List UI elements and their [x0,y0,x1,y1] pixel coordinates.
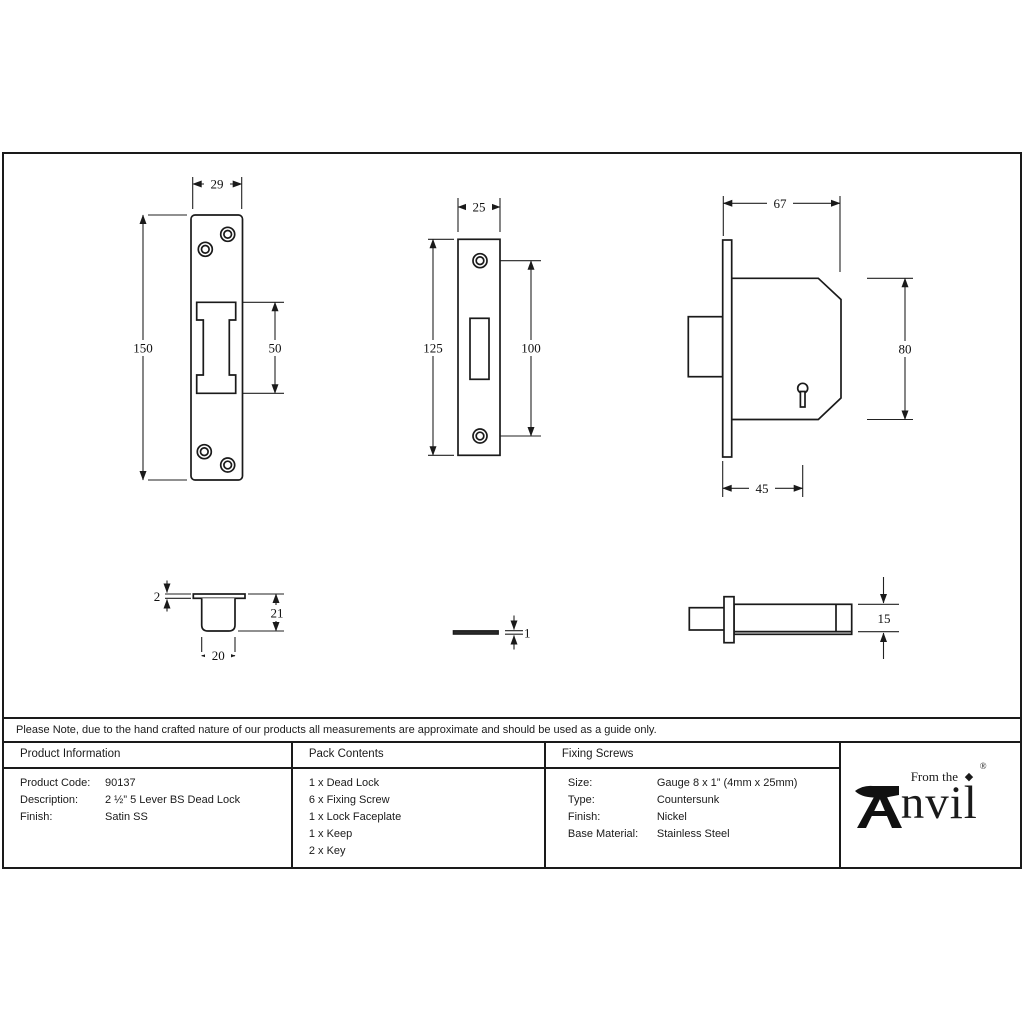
dim-lock-height: 80 [899,342,912,357]
table-row: Finish: Nickel [568,809,839,826]
dim-faceplate-height: 125 [423,341,443,356]
dim-keepside-height: 21 [271,606,284,621]
dim-faceplate-width: 25 [473,200,486,215]
lock-body-side [734,604,852,631]
lockcase-side-view: 15 [689,577,899,659]
table-row: Size: Gauge 8 x 1” (4mm x 25mm) [568,775,839,792]
pack-item: 1 x Dead Lock [309,775,544,792]
row-value: Stainless Steel [657,826,839,843]
lock-forend-strip [723,240,732,457]
dim-lockside-thickness: 15 [878,611,891,626]
lock-body-outline [732,278,841,419]
row-value: Countersunk [657,792,839,809]
row-label: Finish: [20,809,105,826]
lock-forend-side [724,597,734,643]
table-row: Type: Countersunk [568,792,839,809]
registered-mark: ® [980,761,987,771]
pack-contents-cell: Pack Contents 1 x Dead Lock 6 x Fixing S… [293,743,546,867]
table-row: Product Code: 90137 [20,775,291,792]
table-row: Base Material: Stainless Steel [568,826,839,843]
brand-logo-cell: From the ◆ ® nvil [841,743,1020,867]
row-value: 90137 [105,775,291,792]
row-label: Base Material: [568,826,657,843]
row-value: 2 ½” 5 Lever BS Dead Lock [105,792,291,809]
dim-faceplate-holes: 100 [521,341,541,356]
keep-cutout [197,302,236,393]
keep-lip [193,594,245,598]
keep-box [202,598,235,631]
dim-lock-backset: 45 [756,481,769,496]
product-information-header: Product Information [4,743,291,769]
faceplate-edge [453,631,498,635]
lock-body-baseplate [734,632,852,635]
keep-front-view: 29 150 50 [128,177,288,481]
dim-keep-width: 29 [211,177,224,192]
pack-item: 6 x Fixing Screw [309,792,544,809]
dim-keep-cutout: 50 [269,341,282,356]
fixing-screws-cell: Fixing Screws Size: Gauge 8 x 1” (4mm x … [546,743,841,867]
row-value: Satin SS [105,809,291,826]
row-label: Finish: [568,809,657,826]
note-bar: Please Note, due to the hand crafted nat… [2,717,1022,743]
pack-item: 1 x Keep [309,826,544,843]
row-label: Description: [20,792,105,809]
table-row: Finish: Satin SS [20,809,291,826]
note-text: Please Note, due to the hand crafted nat… [16,724,657,736]
row-label: Product Code: [20,775,105,792]
row-label: Size: [568,775,657,792]
row-value: Nickel [657,809,839,826]
dim-lock-depth: 67 [774,196,788,211]
pack-contents-header: Pack Contents [293,743,544,769]
faceplate-front-view: 25 125 100 [418,198,546,455]
pack-item: 2 x Key [309,843,544,860]
pack-item: 1 x Lock Faceplate [309,809,544,826]
row-value: Gauge 8 x 1” (4mm x 25mm) [657,775,839,792]
faceplate-cutout [470,318,489,379]
technical-drawing: 29 150 50 25 125 100 [0,0,1024,717]
dim-keepside-width: 20 [212,648,225,663]
table-row: Description: 2 ½” 5 Lever BS Dead Lock [20,792,291,809]
brand-wordmark: nvil [901,780,978,827]
lock-bolt-side [689,608,725,630]
info-table: Product Information Product Code: 90137 … [2,743,1022,869]
dim-faceplate-thickness: 1 [524,626,531,641]
lock-bolt [688,317,722,377]
fixing-screws-header: Fixing Screws [546,743,839,769]
row-label: Type: [568,792,657,809]
lockcase-front-view: 67 80 45 [688,196,919,497]
product-information-cell: Product Information Product Code: 90137 … [4,743,293,867]
dim-keepside-lip: 2 [154,589,161,604]
anvil-logo-icon [853,785,905,829]
keep-side-view: 2 21 20 [154,581,290,664]
faceplate-side-view: 1 [453,616,530,650]
dim-keep-height: 150 [133,341,153,356]
product-datasheet: 29 150 50 25 125 100 [0,0,1024,1024]
